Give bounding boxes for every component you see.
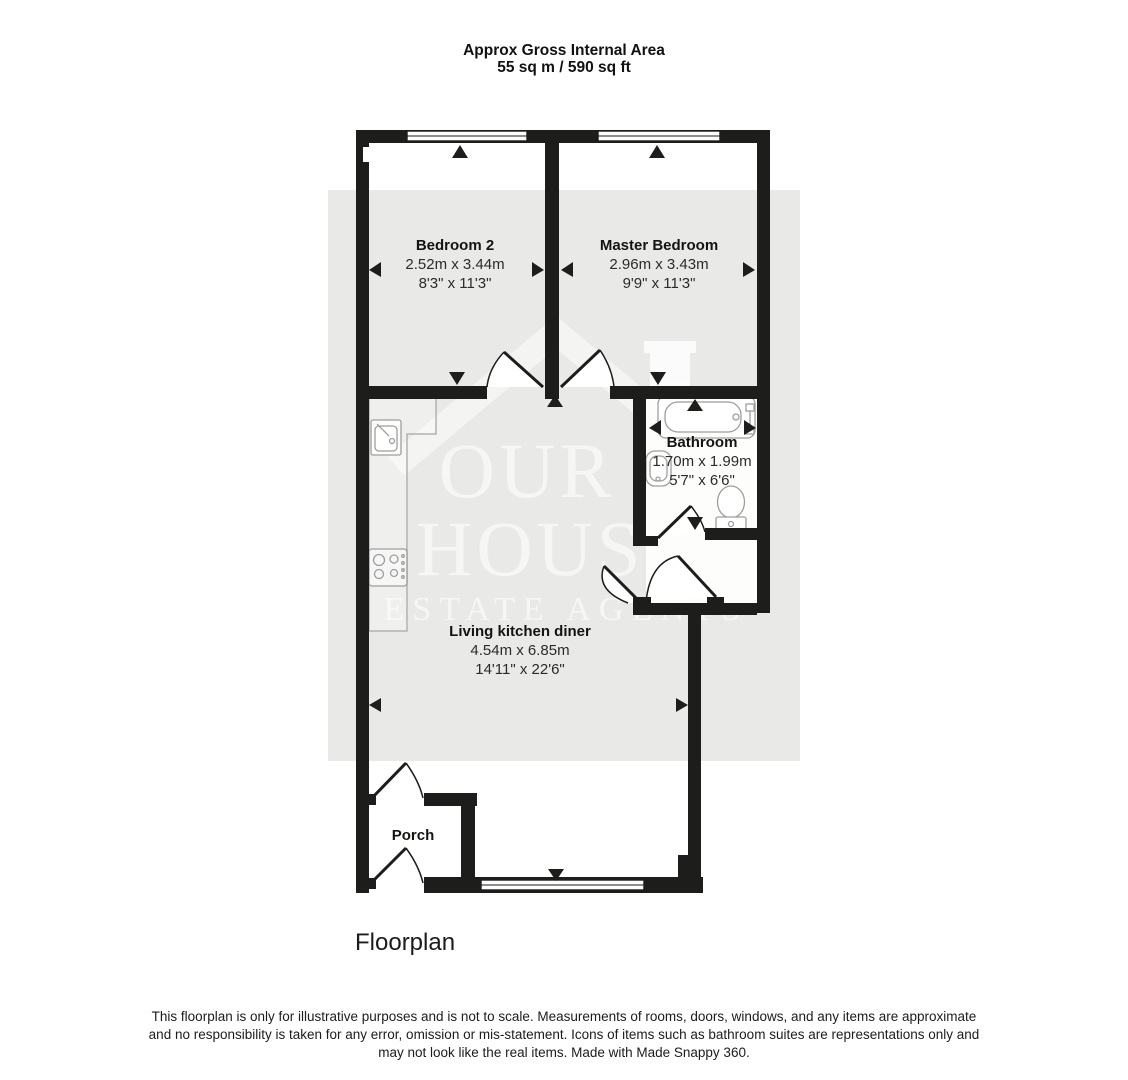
master-imperial: 9'9" x 11'3" [600, 274, 718, 293]
bathtub-icon [658, 396, 755, 438]
master-bedroom-label: Master Bedroom 2.96m x 3.43m 9'9" x 11'3… [600, 236, 718, 293]
disclaimer: This floorplan is only for illustrative … [0, 1008, 1128, 1062]
kitchen-sink-icon [371, 420, 401, 455]
porch-label: Porch [392, 826, 435, 845]
disclaimer-line3: may not look like the real items. Made w… [0, 1044, 1128, 1062]
living-label: Living kitchen diner 4.54m x 6.85m 14'11… [449, 622, 591, 679]
watermark-line1: OUR [439, 427, 616, 514]
bathroom-metric: 1.70m x 1.99m [652, 452, 751, 471]
floorplan-drawing: OUR HOUSE ESTATE AGENTS [0, 0, 1128, 1080]
bedroom2-arrow-up-icon [452, 145, 468, 158]
disclaimer-line1: This floorplan is only for illustrative … [0, 1008, 1128, 1026]
porch-inner-door-arc-icon [370, 763, 423, 800]
bedroom2-window-icon [407, 131, 527, 141]
living-imperial: 14'11" x 22'6" [449, 660, 591, 679]
bedroom2-metric: 2.52m x 3.44m [405, 255, 504, 274]
master-window-icon [598, 131, 720, 141]
entrance-door-arc-icon [370, 848, 423, 884]
toilet-icon [716, 486, 746, 531]
disclaimer-line2: and no responsibility is taken for any e… [0, 1026, 1128, 1044]
living-metric: 4.54m x 6.85m [449, 641, 591, 660]
wall-notch [363, 147, 371, 162]
master-name: Master Bedroom [600, 236, 718, 255]
chimney-icon [644, 341, 696, 386]
floorplan-caption: Floorplan [355, 929, 455, 957]
bedroom2-label: Bedroom 2 2.52m x 3.44m 8'3" x 11'3" [405, 236, 504, 293]
living-window-icon [481, 880, 644, 890]
bathroom-imperial: 5'7" x 6'6" [652, 471, 751, 490]
hob-icon [369, 549, 407, 586]
master-arrow-up-icon [649, 145, 665, 158]
bedroom2-imperial: 8'3" x 11'3" [405, 274, 504, 293]
bathroom-label: Bathroom 1.70m x 1.99m 5'7" x 6'6" [652, 433, 751, 490]
bedroom2-name: Bedroom 2 [405, 236, 504, 255]
living-name: Living kitchen diner [449, 622, 591, 641]
floorplan-page: { "header": { "title_line1": "Approx Gro… [0, 0, 1128, 1080]
porch-name: Porch [392, 826, 435, 845]
master-metric: 2.96m x 3.43m [600, 255, 718, 274]
bathroom-name: Bathroom [652, 433, 751, 452]
